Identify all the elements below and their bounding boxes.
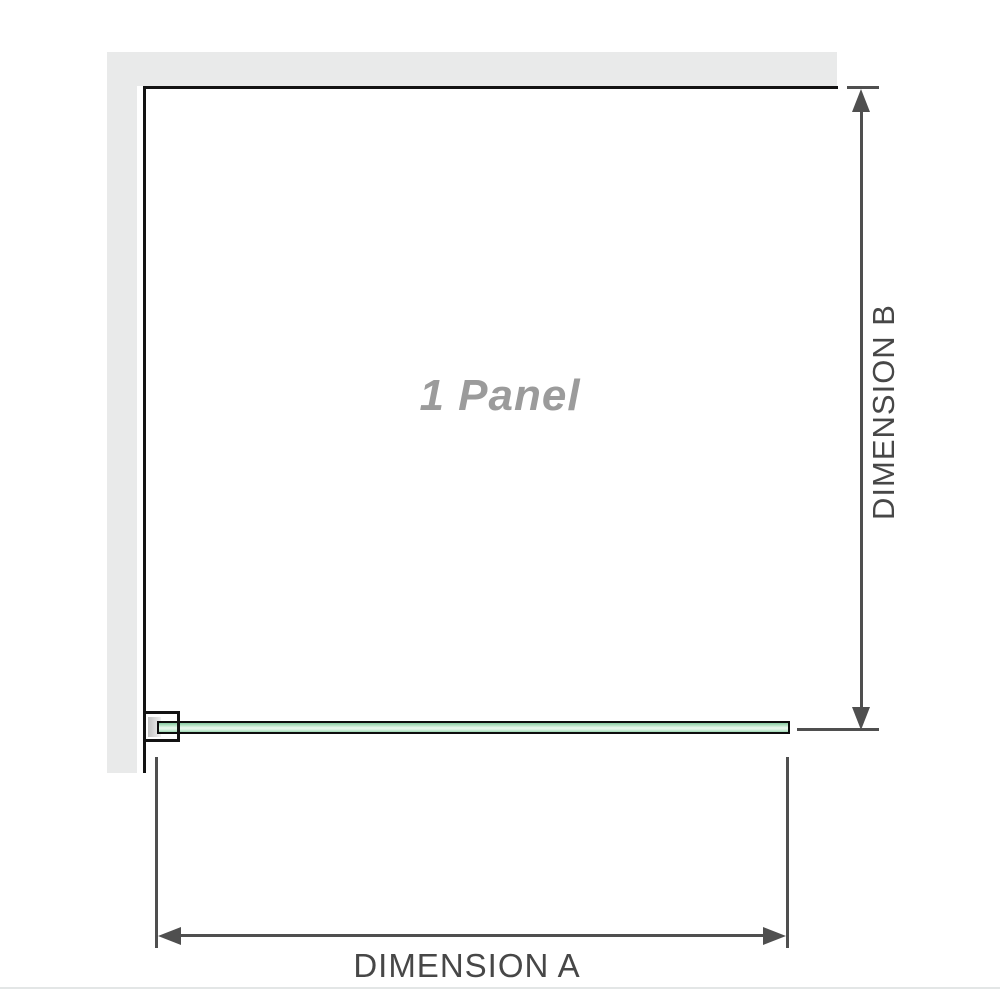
- dimension-a-arrow-left-icon: [158, 927, 181, 945]
- dimension-a-extension-left: [155, 757, 158, 948]
- dimension-b-arrow-up-icon: [852, 89, 870, 112]
- dimension-a-label: DIMENSION A: [353, 947, 580, 985]
- dimension-a-arrow-right-icon: [763, 927, 786, 945]
- wall-top-segment: [107, 52, 837, 86]
- shower-panel-diagram: 1 Panel DIMENSION B DIMENSION A: [0, 0, 1000, 1000]
- glass-panel-bar: [157, 721, 790, 734]
- panel-outline-left: [143, 86, 146, 773]
- dimension-b-line: [860, 108, 863, 710]
- dimension-a-extension-right: [786, 757, 789, 948]
- wall-left-segment: [107, 52, 137, 773]
- panel-outline-top: [143, 86, 838, 89]
- wall-bracket: [143, 711, 180, 742]
- dimension-b-arrow-down-icon: [852, 707, 870, 730]
- panel-count-label: 1 Panel: [419, 371, 580, 421]
- dimension-b-label: DIMENSION B: [866, 304, 902, 520]
- image-bottom-baseline: [0, 987, 1000, 989]
- dimension-a-line: [170, 934, 775, 937]
